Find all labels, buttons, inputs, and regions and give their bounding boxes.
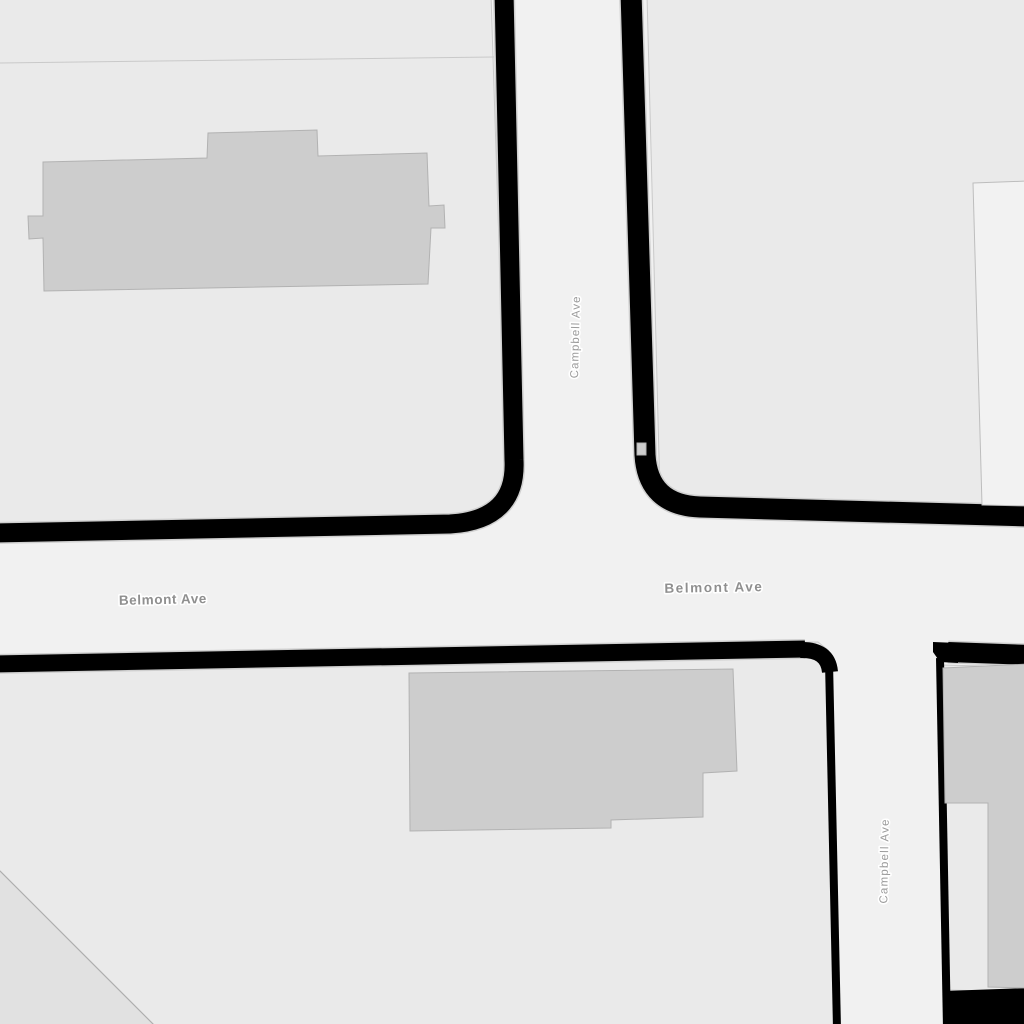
- building-footprint-ne-light: [973, 181, 1024, 506]
- road-label-belmont-east: Belmont Ave: [664, 579, 763, 596]
- road-label-campbell-north: Campbell Ave: [569, 295, 583, 378]
- road-casing-bottom-right: [944, 988, 1024, 1024]
- map-viewport[interactable]: Belmont Ave Belmont Ave Campbell Ave Cam…: [0, 0, 1024, 1024]
- road-label-campbell-south: Campbell Ave: [878, 818, 891, 903]
- building-fragment-intersection: [637, 443, 646, 455]
- road-casing-belmont-south-east: [948, 652, 1024, 655]
- road-label-belmont-west: Belmont Ave: [119, 591, 207, 608]
- block-northeast: [647, 0, 1024, 509]
- building-footprint-sw: [409, 669, 737, 831]
- map-canvas[interactable]: Belmont Ave Belmont Ave Campbell Ave Cam…: [0, 0, 1024, 1024]
